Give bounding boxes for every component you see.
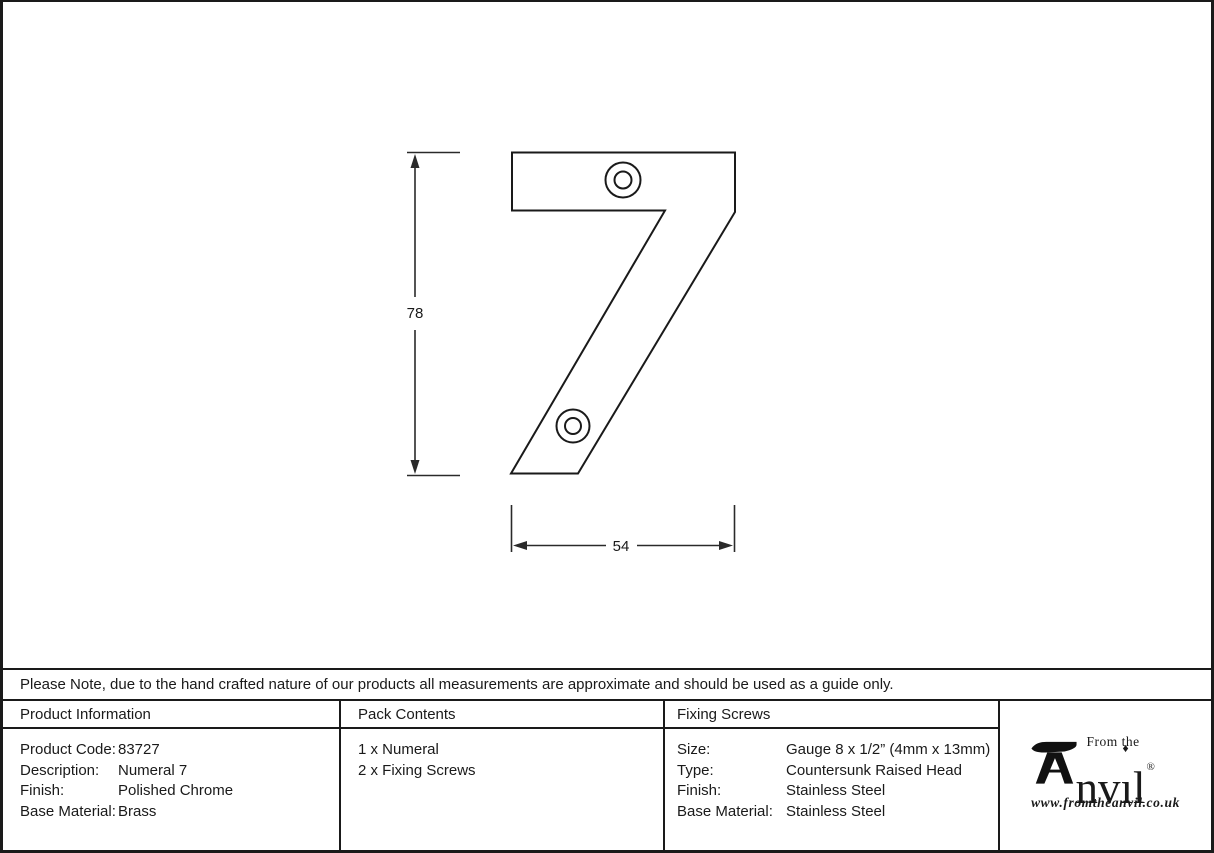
list-item: 1 x Numeral bbox=[358, 740, 663, 761]
row-value: 83727 bbox=[118, 740, 160, 761]
product-information-body: Product Code: 83727 Description: Numeral… bbox=[3, 729, 339, 822]
fixing-screws-cell: Fixing Screws Size: Gauge 8 x 1/2” (4mm … bbox=[665, 701, 1000, 850]
pack-contents-cell: Pack Contents 1 x Numeral 2 x Fixing Scr… bbox=[341, 701, 665, 850]
row-label: Base Material: bbox=[20, 802, 118, 823]
note-text: Please Note, due to the hand crafted nat… bbox=[20, 676, 894, 693]
row-label: Finish: bbox=[20, 781, 118, 802]
measurement-note: Please Note, due to the hand crafted nat… bbox=[3, 668, 1211, 699]
row-label: Type: bbox=[677, 761, 786, 782]
drawing-area: 78 54 bbox=[3, 2, 1211, 668]
brand-i-stem: ı bbox=[1121, 763, 1134, 813]
table-row: Type: Countersunk Raised Head bbox=[677, 761, 998, 782]
screw-hole-bottom-inner bbox=[565, 418, 581, 434]
row-label: Product Code: bbox=[20, 740, 118, 761]
registered-mark: ® bbox=[1147, 761, 1155, 773]
row-value: Brass bbox=[118, 802, 156, 823]
row-label: Finish: bbox=[677, 781, 786, 802]
numeral-7-outline bbox=[511, 153, 735, 474]
row-value: Stainless Steel bbox=[786, 802, 885, 823]
screw-hole-bottom-outer bbox=[557, 410, 590, 443]
brand-suffix: l bbox=[1133, 763, 1146, 813]
pack-contents-body: 1 x Numeral 2 x Fixing Screws bbox=[341, 729, 663, 781]
row-value: Gauge 8 x 1/2” (4mm x 13mm) bbox=[786, 740, 990, 761]
table-row: Base Material: Brass bbox=[20, 802, 339, 823]
product-information-header: Product Information bbox=[3, 701, 339, 729]
row-label: Base Material: bbox=[677, 802, 786, 823]
table-row: Size: Gauge 8 x 1/2” (4mm x 13mm) bbox=[677, 740, 998, 761]
row-value: Countersunk Raised Head bbox=[786, 761, 962, 782]
table-row: Finish: Stainless Steel bbox=[677, 781, 998, 802]
logo-row: From the nvı♦l® bbox=[1030, 734, 1182, 790]
from-the-anvil-logo: From the nvı♦l® www.fromtheanvil.co.uk bbox=[1030, 734, 1182, 811]
fixing-screws-body: Size: Gauge 8 x 1/2” (4mm x 13mm) Type: … bbox=[665, 729, 998, 822]
brand-prefix: nv bbox=[1076, 763, 1121, 813]
brand-i: ı♦ bbox=[1121, 763, 1134, 813]
spec-sheet: 78 54 Please Note, due to the hand craft… bbox=[0, 0, 1214, 853]
diamond-i-dot: ♦ bbox=[1123, 742, 1129, 754]
product-information-cell: Product Information Product Code: 83727 … bbox=[3, 701, 341, 850]
logo-words: From the nvı♦l® bbox=[1076, 734, 1155, 805]
row-value: Numeral 7 bbox=[118, 761, 187, 782]
height-dimension-label: 78 bbox=[407, 305, 424, 322]
table-row: Base Material: Stainless Steel bbox=[677, 802, 998, 823]
screw-hole-top-inner bbox=[615, 172, 632, 189]
row-value: Stainless Steel bbox=[786, 781, 885, 802]
screw-hole-top-outer bbox=[606, 163, 641, 198]
technical-drawing: 78 54 bbox=[3, 2, 1211, 668]
row-label: Description: bbox=[20, 761, 118, 782]
table-row: Product Code: 83727 bbox=[20, 740, 339, 761]
row-label: Size: bbox=[677, 740, 786, 761]
logo-brand-text: nvı♦l® bbox=[1076, 750, 1155, 805]
list-item: 2 x Fixing Screws bbox=[358, 761, 663, 782]
brand-cell: From the nvı♦l® www.fromtheanvil.co.uk bbox=[1000, 701, 1211, 850]
table-row: Finish: Polished Chrome bbox=[20, 781, 339, 802]
logo-tagline: From the bbox=[1087, 734, 1155, 750]
row-value: Polished Chrome bbox=[118, 781, 233, 802]
width-dimension-label: 54 bbox=[613, 538, 630, 555]
spec-table: Product Information Product Code: 83727 … bbox=[3, 699, 1211, 850]
fixing-screws-header: Fixing Screws bbox=[665, 701, 998, 729]
table-row: Description: Numeral 7 bbox=[20, 761, 339, 782]
anvil-icon bbox=[1030, 736, 1078, 788]
pack-contents-header: Pack Contents bbox=[341, 701, 663, 729]
